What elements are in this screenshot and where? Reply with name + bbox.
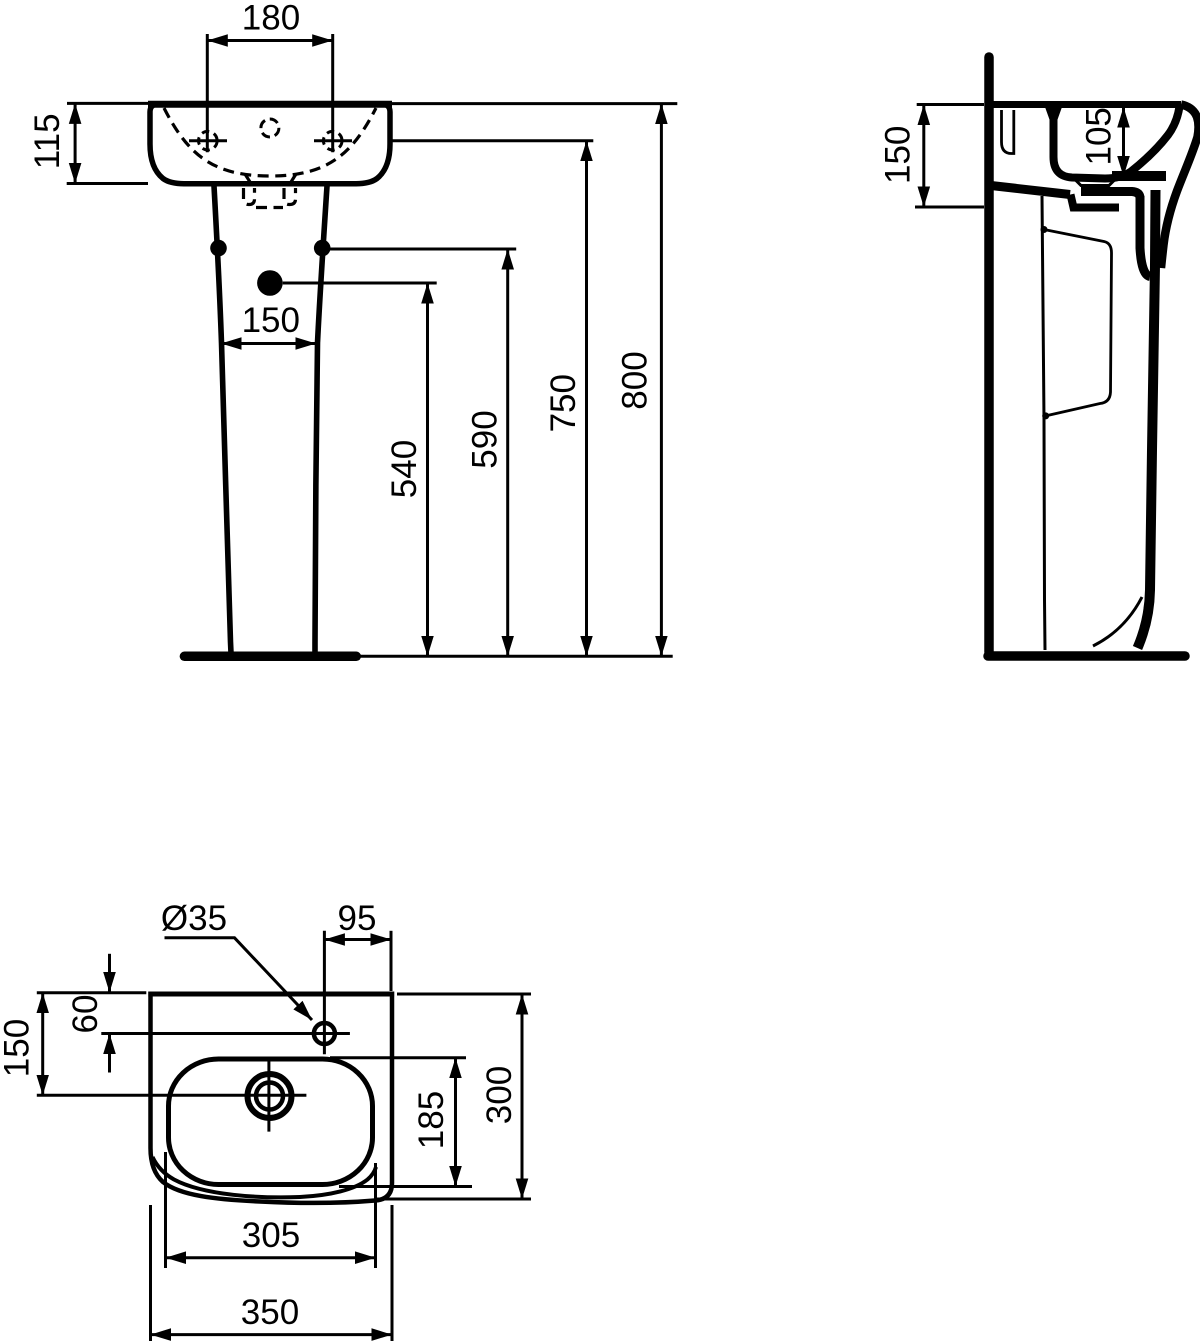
svg-text:150: 150 <box>242 301 300 340</box>
svg-text:115: 115 <box>28 113 67 169</box>
svg-text:305: 305 <box>242 1216 300 1255</box>
svg-text:Ø35: Ø35 <box>161 899 227 938</box>
svg-text:150: 150 <box>0 1019 37 1077</box>
svg-text:750: 750 <box>544 374 583 432</box>
svg-text:150: 150 <box>878 126 917 184</box>
svg-text:95: 95 <box>338 899 377 938</box>
svg-text:590: 590 <box>466 410 505 468</box>
svg-text:350: 350 <box>241 1293 299 1332</box>
svg-text:60: 60 <box>66 995 105 1034</box>
svg-text:540: 540 <box>385 440 424 498</box>
svg-text:180: 180 <box>242 0 300 38</box>
svg-text:300: 300 <box>480 1066 519 1124</box>
svg-text:800: 800 <box>616 351 655 409</box>
svg-text:185: 185 <box>412 1091 451 1149</box>
svg-text:105: 105 <box>1080 107 1119 165</box>
